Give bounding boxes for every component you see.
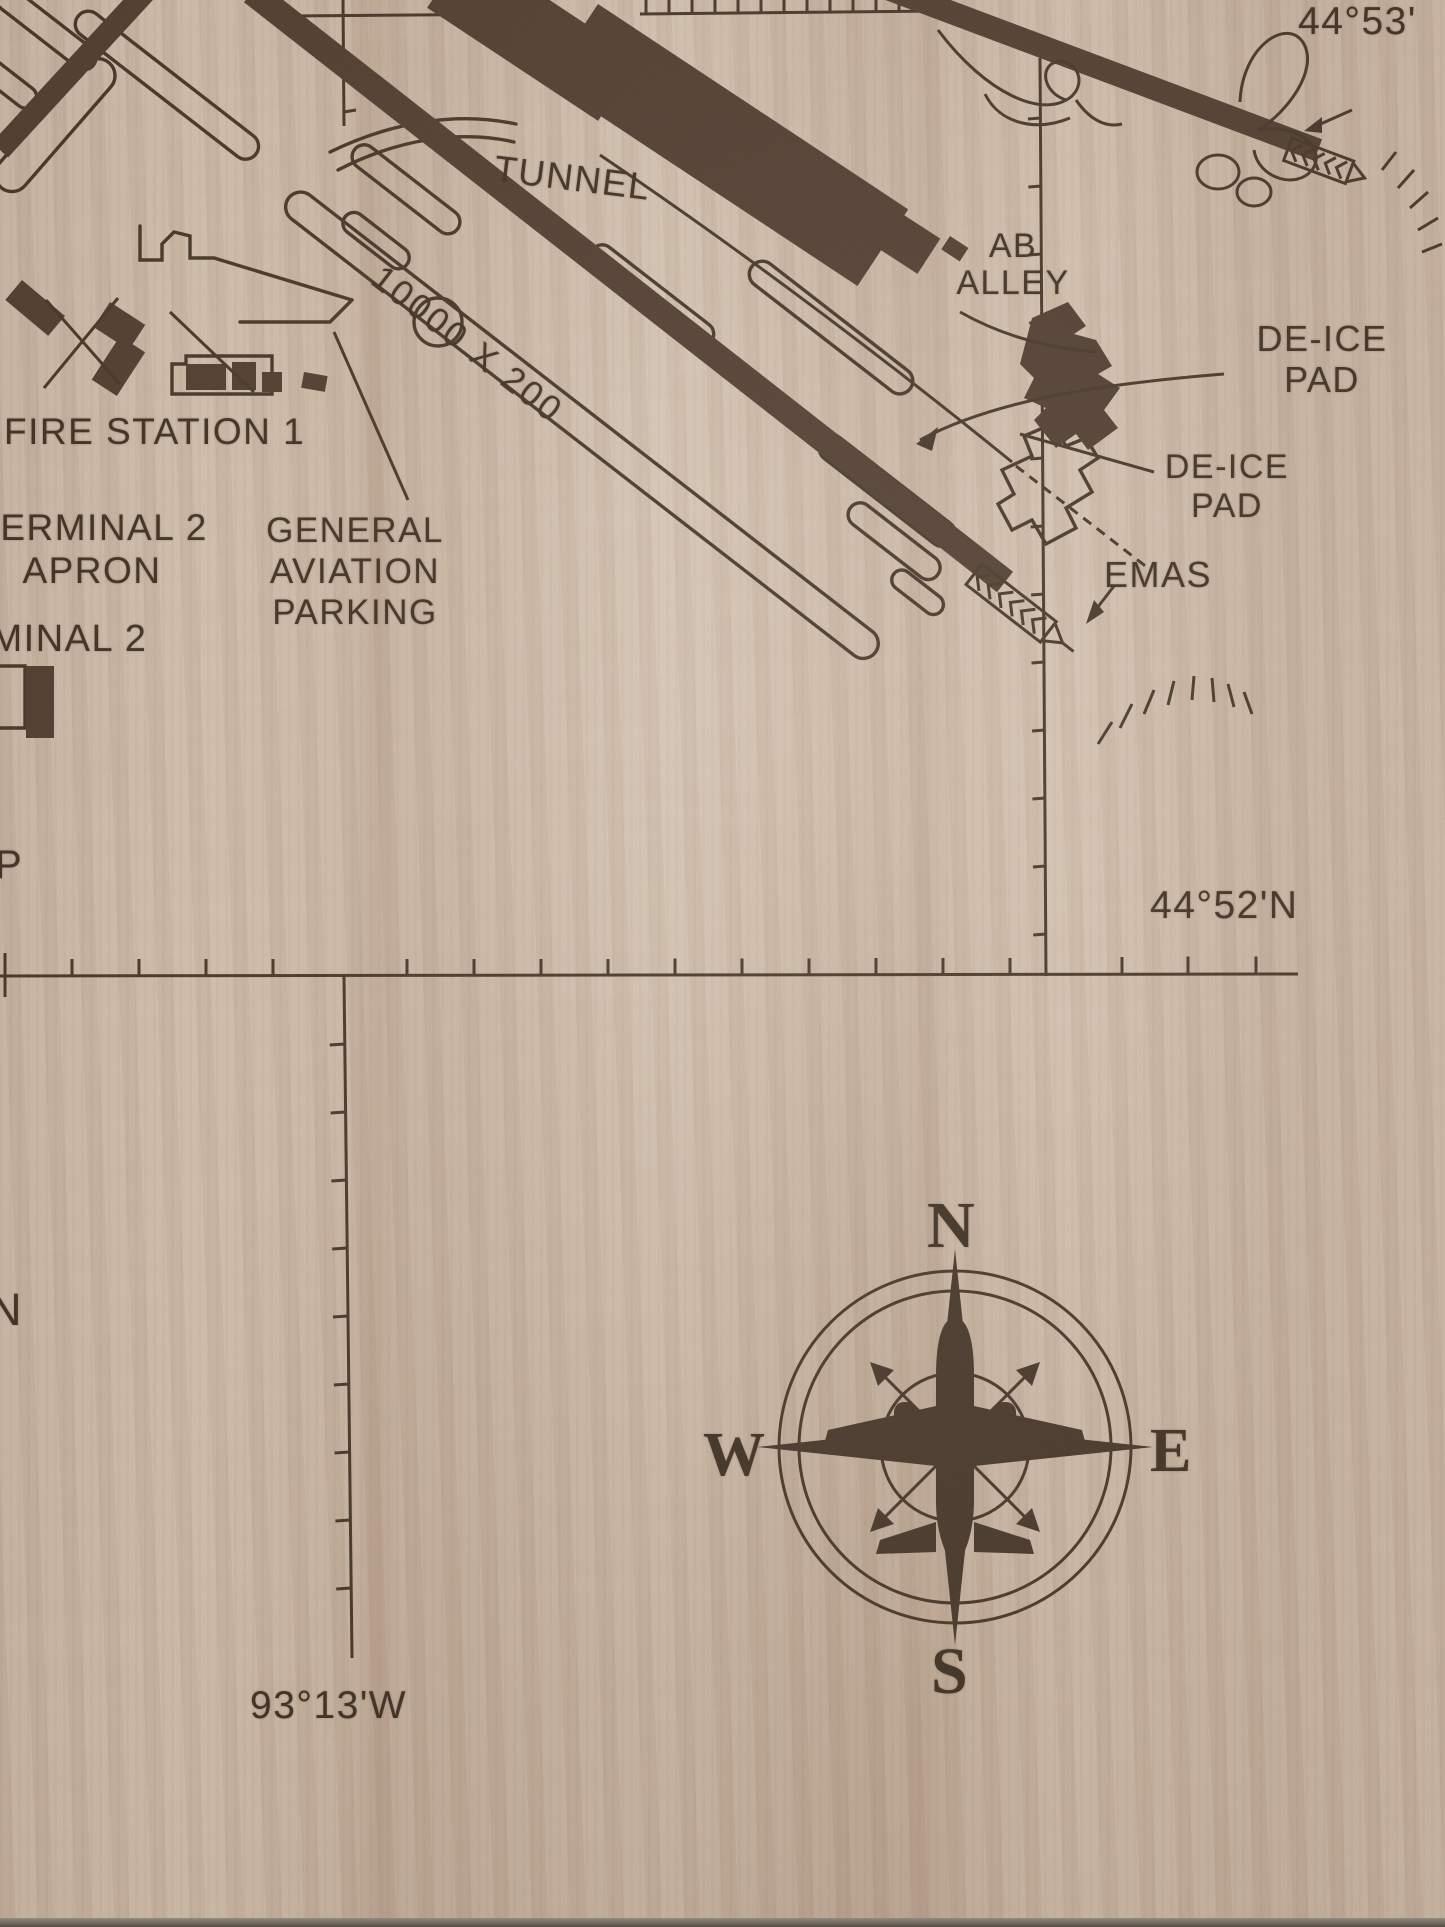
wood-engraved-airport-map: 44°53' TUNNEL AB ALLEY DE-ICE PAD DE-ICE… bbox=[0, 0, 1445, 1927]
photo-light-sheen bbox=[0, 0, 1445, 1927]
board-bottom-edge bbox=[0, 1918, 1445, 1927]
